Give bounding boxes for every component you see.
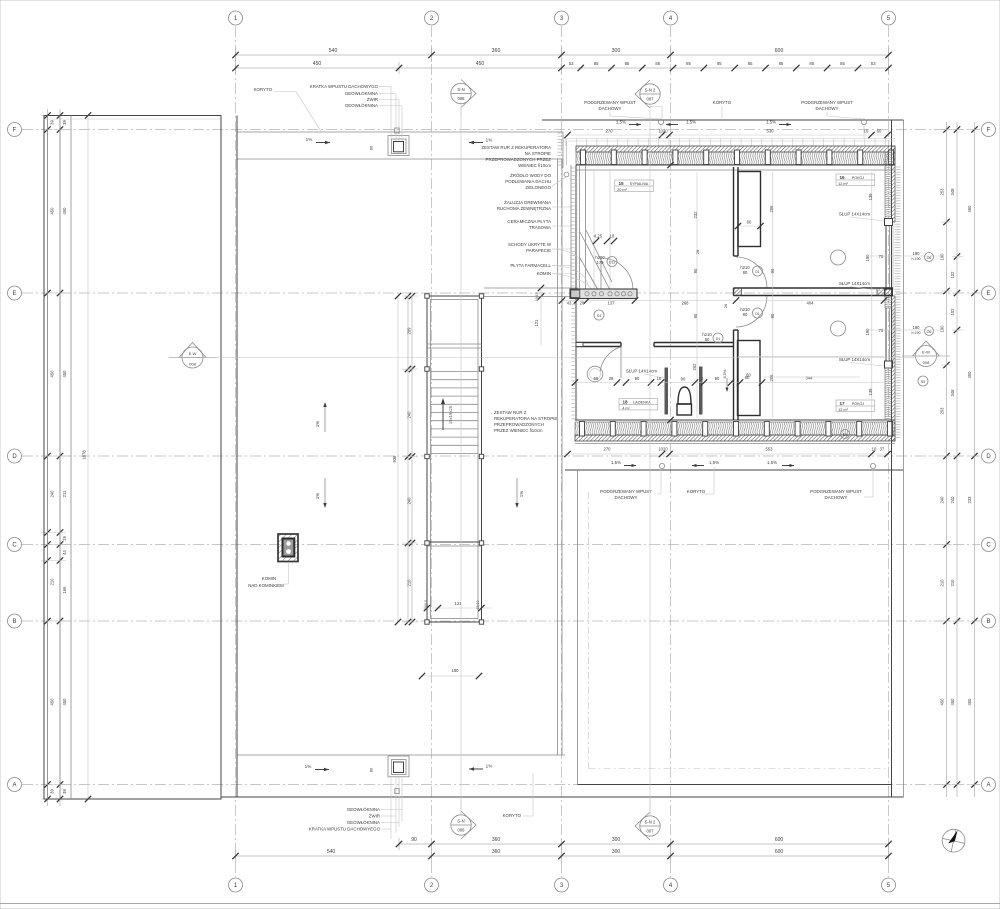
svg-text:O6: O6 xyxy=(927,330,932,334)
svg-text:D: D xyxy=(12,454,17,460)
svg-text:S-N: S-N xyxy=(457,87,464,92)
svg-text:D1: D1 xyxy=(755,270,759,274)
svg-text:4: 4 xyxy=(701,376,704,381)
svg-text:80: 80 xyxy=(369,767,374,772)
svg-text:85: 85 xyxy=(686,61,691,66)
svg-text:300: 300 xyxy=(612,837,621,843)
svg-text:GEOWŁÓKNINA: GEOWŁÓKNINA xyxy=(345,103,378,108)
svg-text:NAD KOMINKIEM: NAD KOMINKIEM xyxy=(248,583,284,588)
svg-text:1,5%: 1,5% xyxy=(616,120,626,125)
svg-text:15|19: 15|19 xyxy=(476,601,480,610)
svg-text:12 m²: 12 m² xyxy=(838,408,848,412)
svg-text:85: 85 xyxy=(809,61,814,66)
svg-text:GEOWŁÓKNINA: GEOWŁÓKNINA xyxy=(347,807,380,812)
svg-text:1020: 1020 xyxy=(658,447,668,452)
svg-text:PODGRZEWANY WPUST: PODGRZEWANY WPUST xyxy=(600,489,652,494)
svg-text:139: 139 xyxy=(868,193,873,201)
svg-text:240: 240 xyxy=(50,490,55,498)
svg-text:210: 210 xyxy=(950,579,955,587)
svg-text:1%: 1% xyxy=(306,137,313,142)
svg-text:D1: D1 xyxy=(716,337,720,341)
svg-text:121: 121 xyxy=(534,319,539,327)
svg-text:1%: 1% xyxy=(486,138,493,143)
svg-text:ŹRÓDŁO WODY DO: ŹRÓDŁO WODY DO xyxy=(510,173,551,178)
svg-text:WIENIEC fi10cm: WIENIEC fi10cm xyxy=(518,163,551,168)
svg-text:PODGRZEWANY WPUST: PODGRZEWANY WPUST xyxy=(810,489,862,494)
svg-text:5: 5 xyxy=(887,16,891,22)
svg-text:ZESTAW RUR Z REKUPERATORA: ZESTAW RUR Z REKUPERATORA xyxy=(481,145,551,150)
svg-text:3: 3 xyxy=(560,16,564,22)
svg-text:008: 008 xyxy=(923,360,930,365)
svg-text:29: 29 xyxy=(62,536,67,541)
svg-text:10: 10 xyxy=(872,447,877,452)
svg-text:POKÓJ: POKÓJ xyxy=(852,401,864,406)
svg-text:450: 450 xyxy=(313,61,322,67)
svg-text:C: C xyxy=(986,543,991,549)
svg-text:268: 268 xyxy=(682,301,690,306)
svg-text:6,5%: 6,5% xyxy=(723,369,727,378)
svg-text:210: 210 xyxy=(50,578,55,586)
svg-text:4,25: 4,25 xyxy=(594,234,603,239)
svg-text:12 m²: 12 m² xyxy=(838,182,848,186)
svg-text:211: 211 xyxy=(62,490,67,497)
svg-text:1878: 1878 xyxy=(82,450,87,460)
svg-text:D1: D1 xyxy=(755,312,759,316)
svg-text:190: 190 xyxy=(865,328,870,336)
svg-text:450: 450 xyxy=(476,61,485,67)
svg-text:137: 137 xyxy=(608,301,616,306)
svg-text:240: 240 xyxy=(940,496,945,504)
svg-text:007: 007 xyxy=(647,829,655,834)
svg-text:85: 85 xyxy=(840,61,845,66)
svg-text:10: 10 xyxy=(864,129,869,134)
svg-text:39: 39 xyxy=(62,120,67,125)
svg-text:E-W: E-W xyxy=(189,351,197,356)
svg-text:90: 90 xyxy=(411,837,417,843)
svg-text:450: 450 xyxy=(50,698,55,706)
svg-text:1%: 1% xyxy=(315,421,320,427)
svg-text:252: 252 xyxy=(692,363,697,371)
svg-text:E-W: E-W xyxy=(922,350,930,355)
svg-text:240: 240 xyxy=(950,496,955,504)
svg-text:233: 233 xyxy=(967,496,972,504)
svg-text:600: 600 xyxy=(775,48,784,54)
svg-text:DACHOWY: DACHOWY xyxy=(599,106,622,111)
svg-text:85: 85 xyxy=(655,61,660,66)
svg-text:348: 348 xyxy=(950,188,955,196)
svg-text:O6: O6 xyxy=(927,256,932,260)
svg-text:1020: 1020 xyxy=(658,129,668,134)
svg-text:ŻWIR: ŻWIR xyxy=(369,814,380,819)
svg-text:360: 360 xyxy=(492,837,501,843)
svg-text:4: 4 xyxy=(669,883,673,889)
svg-text:2: 2 xyxy=(430,16,434,22)
svg-text:S4: S4 xyxy=(597,314,601,318)
svg-text:1%: 1% xyxy=(519,491,524,497)
svg-text:KOMIN: KOMIN xyxy=(262,576,276,581)
svg-text:ZIELONEGO: ZIELONEGO xyxy=(525,185,551,190)
svg-text:450: 450 xyxy=(50,207,55,215)
svg-text:450: 450 xyxy=(940,698,945,706)
svg-text:102: 102 xyxy=(950,271,955,279)
svg-text:270: 270 xyxy=(604,447,612,452)
svg-text:90: 90 xyxy=(681,377,686,382)
svg-text:006: 006 xyxy=(458,96,466,101)
svg-text:006: 006 xyxy=(458,828,466,833)
svg-text:17: 17 xyxy=(839,401,845,406)
svg-text:E: E xyxy=(12,291,16,297)
svg-text:ŻWIR: ŻWIR xyxy=(367,97,378,102)
svg-text:80: 80 xyxy=(705,337,710,342)
svg-text:553: 553 xyxy=(766,447,774,452)
svg-text:PRZEPROWADZONYCH: PRZEPROWADZONYCH xyxy=(494,422,544,427)
svg-text:240: 240 xyxy=(407,411,412,419)
svg-text:90: 90 xyxy=(770,268,775,273)
svg-text:102: 102 xyxy=(950,308,955,316)
svg-text:210: 210 xyxy=(407,579,412,587)
svg-text:S-N: S-N xyxy=(457,819,464,824)
svg-text:28: 28 xyxy=(696,250,700,254)
svg-text:5: 5 xyxy=(887,883,891,889)
svg-text:h.190: h.190 xyxy=(912,331,921,335)
svg-text:253: 253 xyxy=(940,407,945,415)
svg-text:80: 80 xyxy=(369,145,374,150)
svg-text:KORYTO: KORYTO xyxy=(503,813,522,818)
svg-text:C: C xyxy=(12,543,17,549)
svg-text:360: 360 xyxy=(492,48,501,54)
svg-text:1,5%: 1,5% xyxy=(767,460,777,465)
svg-text:938: 938 xyxy=(392,455,397,463)
svg-text:179: 179 xyxy=(597,260,605,265)
svg-text:26: 26 xyxy=(724,304,728,308)
svg-text:600: 600 xyxy=(775,837,784,843)
svg-text:190: 190 xyxy=(940,325,945,333)
svg-text:PŁYTA FARMACELL: PŁYTA FARMACELL xyxy=(510,263,551,268)
svg-text:90: 90 xyxy=(635,376,640,381)
svg-text:B: B xyxy=(986,619,990,625)
svg-text:53: 53 xyxy=(871,61,876,66)
svg-text:20 m²: 20 m² xyxy=(617,188,627,192)
svg-text:D: D xyxy=(986,454,991,460)
svg-text:206: 206 xyxy=(769,205,774,213)
svg-text:h.190: h.190 xyxy=(912,257,921,261)
svg-text:ZESTAW RUR Z: ZESTAW RUR Z xyxy=(494,410,527,415)
svg-text:90: 90 xyxy=(715,376,720,381)
svg-text:28: 28 xyxy=(609,376,614,381)
svg-text:1,5%: 1,5% xyxy=(709,460,719,465)
svg-text:SŁUP 14X14cm: SŁUP 14X14cm xyxy=(626,369,658,374)
svg-text:REKUPERATORA NA STROPIE: REKUPERATORA NA STROPIE xyxy=(494,416,557,421)
svg-text:S5: S5 xyxy=(921,380,925,384)
svg-text:60: 60 xyxy=(745,375,750,380)
svg-text:90: 90 xyxy=(770,313,775,318)
svg-text:450: 450 xyxy=(967,205,972,213)
svg-text:210: 210 xyxy=(940,579,945,587)
svg-text:180: 180 xyxy=(452,668,460,673)
svg-text:TRASOWA: TRASOWA xyxy=(529,225,551,230)
svg-text:19|6,5: 19|6,5 xyxy=(424,600,428,610)
svg-text:PODLEWANIA DACHU: PODLEWANIA DACHU xyxy=(505,179,551,184)
svg-text:60: 60 xyxy=(877,129,882,134)
svg-text:253: 253 xyxy=(940,188,945,196)
svg-text:360: 360 xyxy=(492,849,501,855)
svg-text:PODGRZEWANY WPUST: PODGRZEWANY WPUST xyxy=(584,100,636,105)
svg-text:008: 008 xyxy=(189,362,196,367)
svg-text:344: 344 xyxy=(806,376,814,381)
svg-text:80: 80 xyxy=(743,312,748,317)
svg-text:KRATKA WPUSTU DACHOWYEGO: KRATKA WPUSTU DACHOWYEGO xyxy=(309,827,381,832)
svg-text:GEOWŁÓKNINA: GEOWŁÓKNINA xyxy=(347,820,380,825)
svg-text:90: 90 xyxy=(693,268,698,273)
svg-text:600: 600 xyxy=(775,849,784,855)
svg-text:60: 60 xyxy=(747,220,752,225)
svg-text:2: 2 xyxy=(430,883,434,889)
svg-text:KRATKA WPUSTU DACHOWYGO: KRATKA WPUSTU DACHOWYGO xyxy=(310,84,379,89)
svg-text:75: 75 xyxy=(879,328,884,333)
svg-text:S-N 2: S-N 2 xyxy=(645,820,656,825)
svg-text:450: 450 xyxy=(967,371,972,379)
svg-text:DACHOWY: DACHOWY xyxy=(816,106,839,111)
svg-text:4 m²: 4 m² xyxy=(622,406,630,410)
svg-text:37: 37 xyxy=(880,447,885,452)
svg-text:209: 209 xyxy=(407,327,412,335)
svg-text:44: 44 xyxy=(62,550,67,555)
svg-text:RUCHOMA ZEWNĘTRZNA: RUCHOMA ZEWNĘTRZNA xyxy=(497,206,551,211)
svg-text:S3: S3 xyxy=(843,433,847,437)
svg-text:SŁUP 14X14cm: SŁUP 14X14cm xyxy=(839,212,871,217)
svg-text:28: 28 xyxy=(580,301,585,306)
svg-text:43: 43 xyxy=(567,301,572,306)
svg-text:300: 300 xyxy=(612,849,621,855)
svg-text:KOMIN: KOMIN xyxy=(537,271,551,276)
svg-text:348: 348 xyxy=(950,389,955,397)
svg-text:190: 190 xyxy=(913,325,921,330)
svg-text:450: 450 xyxy=(62,698,67,706)
svg-text:DACHOWY: DACHOWY xyxy=(615,495,638,500)
svg-text:PARAPECIE: PARAPECIE xyxy=(526,248,551,253)
svg-text:59: 59 xyxy=(594,376,599,381)
svg-text:450: 450 xyxy=(967,698,972,706)
svg-text:PRZEZ WIENIEC fi10cm: PRZEZ WIENIEC fi10cm xyxy=(494,428,543,433)
svg-text:190: 190 xyxy=(865,254,870,262)
svg-text:80: 80 xyxy=(743,270,748,275)
svg-text:450: 450 xyxy=(62,207,67,215)
svg-text:F: F xyxy=(987,128,991,134)
svg-text:1: 1 xyxy=(234,16,238,22)
svg-text:DACHOWY: DACHOWY xyxy=(825,495,848,500)
svg-text:E: E xyxy=(986,291,990,297)
svg-text:300: 300 xyxy=(612,48,621,54)
svg-text:85: 85 xyxy=(748,61,753,66)
svg-text:139: 139 xyxy=(868,388,873,396)
svg-text:ŁAZIENKA: ŁAZIENKA xyxy=(633,400,651,404)
svg-text:15: 15 xyxy=(618,181,624,186)
svg-text:450: 450 xyxy=(950,698,955,706)
svg-text:166: 166 xyxy=(62,586,67,594)
svg-text:A: A xyxy=(986,783,990,789)
svg-text:B: B xyxy=(12,619,16,625)
svg-text:85: 85 xyxy=(779,61,784,66)
svg-text:1: 1 xyxy=(234,883,238,889)
svg-text:85: 85 xyxy=(594,61,599,66)
svg-text:KORYTO: KORYTO xyxy=(254,87,273,92)
svg-text:450: 450 xyxy=(62,370,67,378)
svg-text:53: 53 xyxy=(569,61,574,66)
svg-text:4: 4 xyxy=(669,16,673,22)
svg-text:15x19x25: 15x19x25 xyxy=(448,405,453,424)
svg-text:404: 404 xyxy=(807,301,815,306)
svg-text:75: 75 xyxy=(879,254,884,259)
svg-text:232: 232 xyxy=(693,211,698,219)
svg-text:ŻALUZJA DREWNIANA: ŻALUZJA DREWNIANA xyxy=(504,200,551,205)
svg-text:KORYTO: KORYTO xyxy=(713,100,732,105)
svg-text:1%: 1% xyxy=(305,764,312,769)
svg-text:KORYTO: KORYTO xyxy=(687,489,706,494)
svg-text:540: 540 xyxy=(327,849,336,855)
svg-text:F: F xyxy=(13,128,17,134)
svg-text:240: 240 xyxy=(407,497,412,505)
svg-text:S-N 2: S-N 2 xyxy=(645,88,656,93)
svg-text:206: 206 xyxy=(769,374,774,382)
svg-text:NA STROPIE: NA STROPIE xyxy=(525,151,551,156)
svg-text:270: 270 xyxy=(606,129,614,134)
svg-text:85: 85 xyxy=(717,61,722,66)
svg-text:90: 90 xyxy=(693,313,698,318)
svg-text:POKÓJ: POKÓJ xyxy=(852,175,864,180)
svg-text:39: 39 xyxy=(50,120,55,125)
svg-text:3: 3 xyxy=(560,883,564,889)
svg-text:19|19: 19|19 xyxy=(535,293,539,302)
svg-text:1%: 1% xyxy=(486,764,493,769)
svg-text:190: 190 xyxy=(913,251,921,256)
svg-text:540: 540 xyxy=(329,48,338,54)
svg-text:1,5%: 1,5% xyxy=(766,120,776,125)
svg-text:SYPIALNIA: SYPIALNIA xyxy=(630,182,649,186)
svg-text:18: 18 xyxy=(610,234,615,239)
svg-text:16: 16 xyxy=(839,175,845,180)
svg-text:PRZEPROWADZONYCH PRZEZ: PRZEPROWADZONYCH PRZEZ xyxy=(486,157,552,162)
svg-text:CERAMICZNA PŁYTA: CERAMICZNA PŁYTA xyxy=(507,219,551,224)
svg-text:1,5%: 1,5% xyxy=(611,460,621,465)
svg-text:GEOWŁÓKNINA: GEOWŁÓKNINA xyxy=(345,91,378,96)
svg-text:PODGRZEWANY WPUST: PODGRZEWANY WPUST xyxy=(801,100,853,105)
svg-text:18: 18 xyxy=(622,400,628,405)
svg-text:85: 85 xyxy=(625,61,630,66)
svg-text:SŁUP 14X14cm: SŁUP 14X14cm xyxy=(839,281,871,286)
svg-text:A: A xyxy=(12,783,16,789)
svg-text:1%: 1% xyxy=(315,493,320,499)
svg-text:39: 39 xyxy=(62,789,67,794)
svg-text:530: 530 xyxy=(767,129,775,134)
svg-text:450: 450 xyxy=(50,370,55,378)
svg-text:007: 007 xyxy=(647,97,655,102)
svg-text:190: 190 xyxy=(940,253,945,261)
svg-text:39: 39 xyxy=(50,789,55,794)
svg-text:10: 10 xyxy=(657,376,662,381)
svg-text:SCHODY UKRYTE W: SCHODY UKRYTE W xyxy=(508,242,552,247)
svg-text:1,5%: 1,5% xyxy=(686,120,696,125)
